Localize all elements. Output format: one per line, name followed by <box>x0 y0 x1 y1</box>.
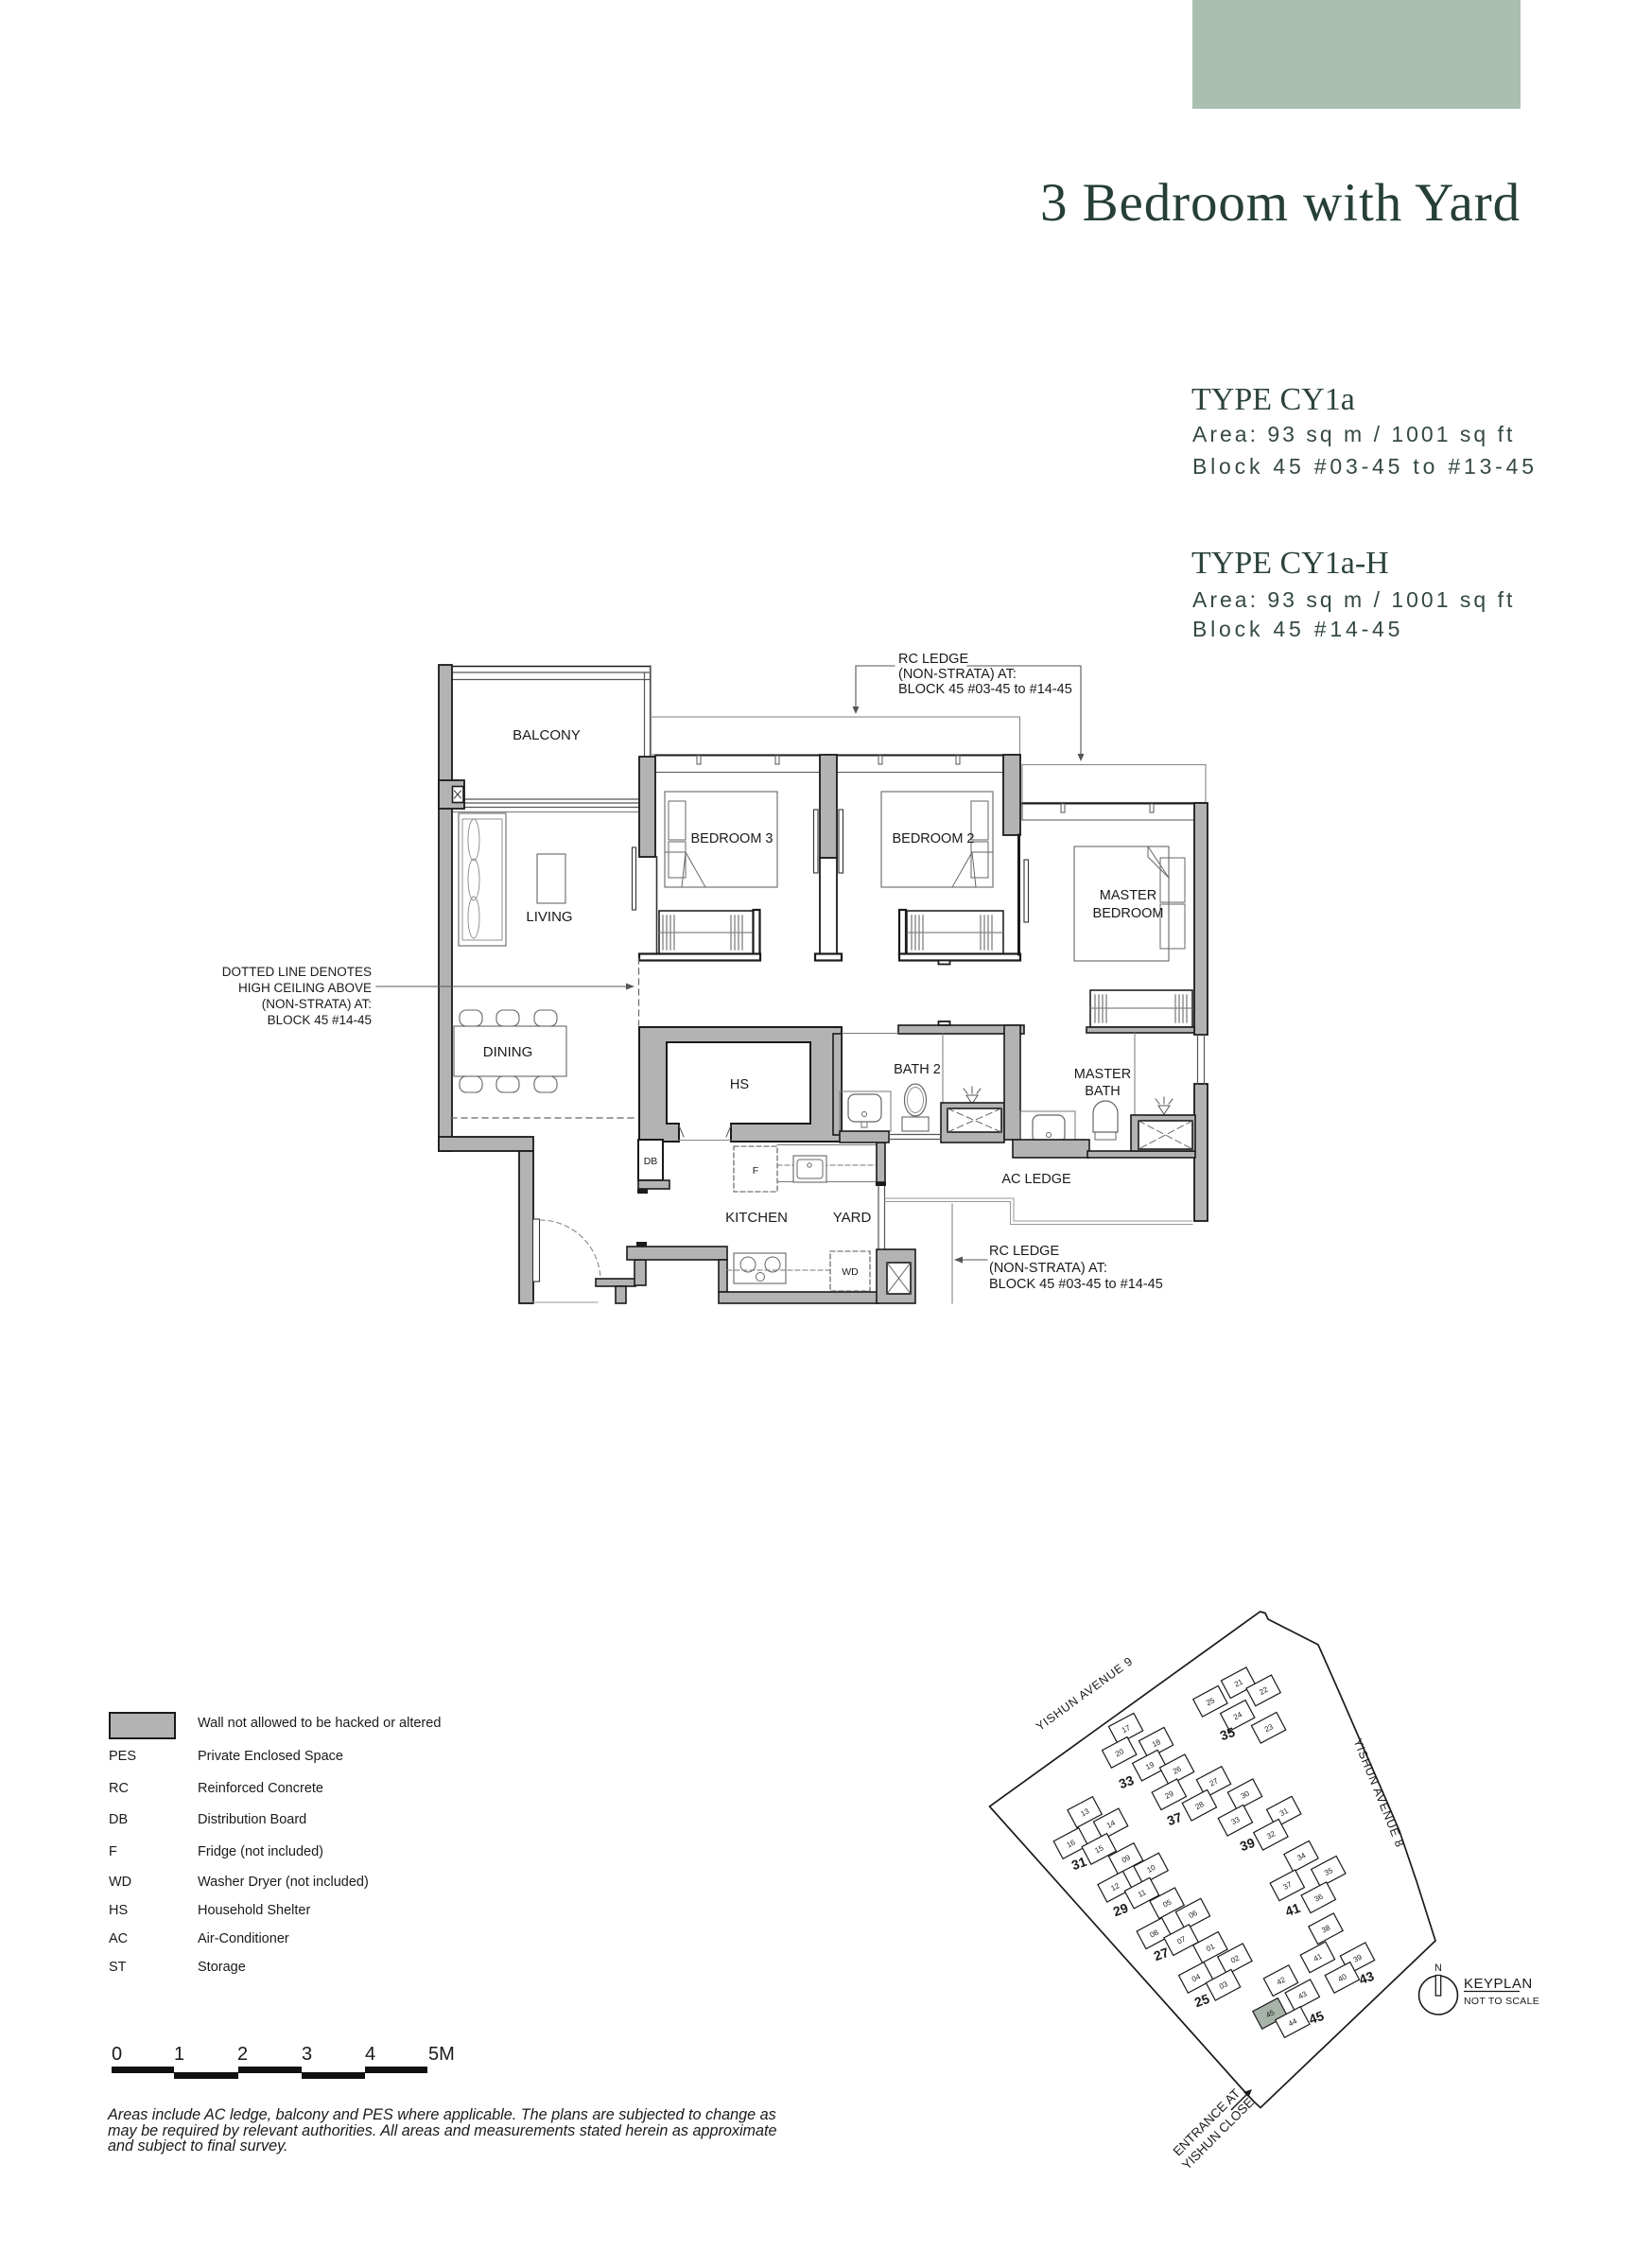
svg-text:HS: HS <box>730 1077 749 1092</box>
svg-text:(NON-STRATA) AT:: (NON-STRATA) AT: <box>898 667 1017 682</box>
svg-text:25: 25 <box>1192 1991 1211 2010</box>
svg-text:39: 39 <box>1238 1835 1257 1854</box>
svg-text:MASTER: MASTER <box>1100 888 1156 903</box>
svg-text:YISHUN AVENUE 8: YISHUN AVENUE 8 <box>1350 1736 1406 1849</box>
svg-text:BEDROOM 2: BEDROOM 2 <box>892 831 974 846</box>
svg-text:F: F <box>753 1165 758 1177</box>
svg-text:RC LEDGE: RC LEDGE <box>989 1244 1059 1259</box>
svg-text:27: 27 <box>1152 1945 1171 1963</box>
svg-text:BATH 2: BATH 2 <box>894 1062 941 1077</box>
svg-text:N: N <box>1434 1963 1442 1974</box>
svg-text:NOT TO SCALE: NOT TO SCALE <box>1464 1996 1539 2007</box>
svg-text:MASTER: MASTER <box>1074 1067 1131 1082</box>
svg-text:BEDROOM: BEDROOM <box>1093 906 1164 921</box>
svg-text:RC LEDGE: RC LEDGE <box>898 652 968 667</box>
svg-text:BATH: BATH <box>1085 1084 1121 1099</box>
svg-text:37: 37 <box>1165 1809 1184 1828</box>
svg-text:BLOCK 45 #03-45 to #14-45: BLOCK 45 #03-45 to #14-45 <box>989 1277 1163 1292</box>
svg-text:HIGH CEILING ABOVE: HIGH CEILING ABOVE <box>238 981 372 995</box>
svg-text:DINING: DINING <box>483 1044 533 1060</box>
svg-text:BLOCK 45 #03-45 to #14-45: BLOCK 45 #03-45 to #14-45 <box>898 682 1072 697</box>
svg-text:KITCHEN: KITCHEN <box>725 1210 788 1226</box>
svg-text:WD: WD <box>842 1266 859 1278</box>
svg-text:33: 33 <box>1117 1772 1136 1791</box>
svg-text:BALCONY: BALCONY <box>513 727 581 743</box>
svg-text:31: 31 <box>1069 1854 1088 1873</box>
svg-text:41: 41 <box>1283 1900 1302 1919</box>
svg-text:29: 29 <box>1111 1900 1130 1919</box>
svg-text:YARD: YARD <box>833 1210 872 1226</box>
svg-text:(NON-STRATA) AT:: (NON-STRATA) AT: <box>262 997 372 1011</box>
svg-text:43: 43 <box>1357 1968 1376 1987</box>
svg-text:(NON-STRATA) AT:: (NON-STRATA) AT: <box>989 1261 1107 1276</box>
svg-text:LIVING: LIVING <box>526 909 572 925</box>
svg-text:KEYPLAN: KEYPLAN <box>1464 1976 1533 1992</box>
svg-text:DOTTED LINE DENOTES: DOTTED LINE DENOTES <box>222 965 372 979</box>
svg-text:BLOCK 45 #14-45: BLOCK 45 #14-45 <box>268 1013 372 1027</box>
svg-text:AC LEDGE: AC LEDGE <box>1001 1172 1071 1187</box>
svg-text:BEDROOM 3: BEDROOM 3 <box>690 831 773 846</box>
svg-text:DB: DB <box>644 1156 658 1167</box>
